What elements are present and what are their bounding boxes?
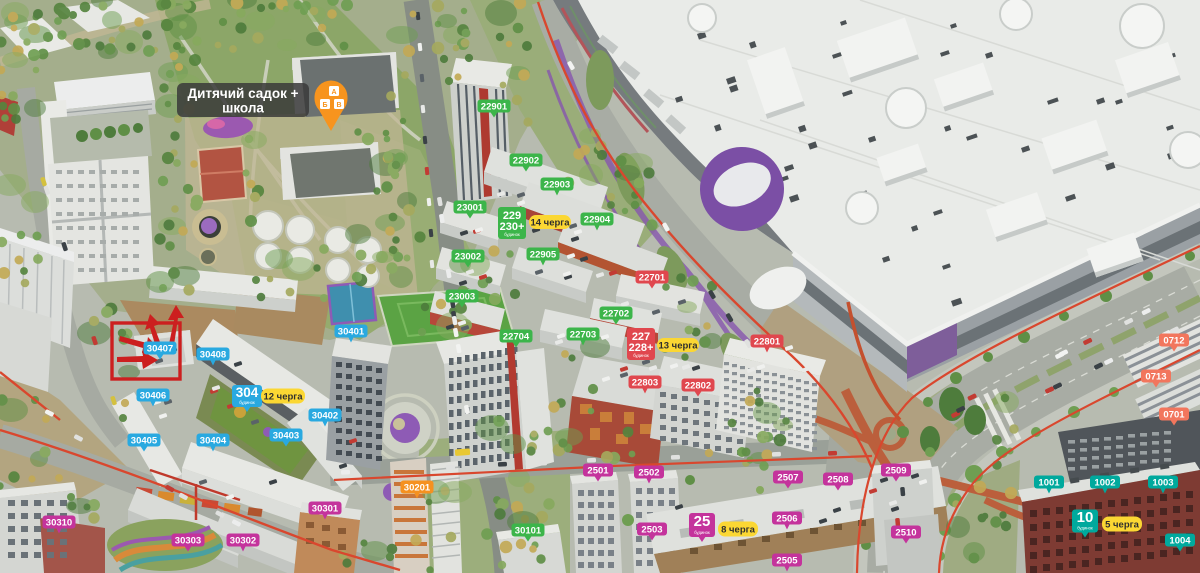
- svg-text:В: В: [336, 102, 341, 109]
- svg-text:будинок: будинок: [694, 530, 710, 535]
- svg-text:1004: 1004: [1169, 535, 1191, 546]
- svg-text:14 черга: 14 черга: [530, 217, 570, 228]
- svg-text:2501: 2501: [587, 465, 609, 476]
- svg-text:304: 304: [236, 385, 259, 400]
- svg-text:школа: школа: [222, 101, 264, 116]
- svg-text:23001: 23001: [457, 202, 484, 213]
- svg-text:30408: 30408: [200, 349, 226, 360]
- svg-text:10: 10: [1077, 509, 1094, 526]
- svg-text:12 черга: 12 черга: [263, 391, 303, 402]
- svg-text:2509: 2509: [885, 465, 906, 476]
- svg-text:22901: 22901: [481, 101, 508, 112]
- svg-text:2507: 2507: [777, 472, 798, 483]
- svg-text:2503: 2503: [641, 524, 662, 535]
- svg-text:30101: 30101: [515, 525, 542, 536]
- svg-text:будинок: будинок: [504, 232, 520, 237]
- svg-text:1003: 1003: [1152, 477, 1173, 488]
- svg-text:22801: 22801: [754, 336, 781, 347]
- svg-text:30406: 30406: [140, 390, 166, 401]
- svg-text:22704: 22704: [503, 331, 530, 342]
- svg-text:22904: 22904: [584, 214, 611, 225]
- svg-text:А: А: [331, 89, 336, 96]
- svg-text:30403: 30403: [273, 430, 299, 441]
- svg-text:0713: 0713: [1145, 371, 1166, 382]
- svg-text:22905: 22905: [530, 249, 557, 260]
- svg-text:2508: 2508: [827, 474, 848, 485]
- svg-text:30303: 30303: [175, 535, 201, 546]
- svg-text:13 черга: 13 черга: [658, 340, 698, 351]
- svg-text:22701: 22701: [639, 272, 666, 283]
- svg-text:будинок: будинок: [239, 400, 255, 405]
- svg-text:23002: 23002: [455, 251, 481, 262]
- svg-text:2502: 2502: [638, 467, 659, 478]
- svg-text:22803: 22803: [632, 377, 658, 388]
- svg-text:2506: 2506: [776, 513, 797, 524]
- svg-text:30404: 30404: [200, 435, 227, 446]
- svg-text:22903: 22903: [544, 179, 570, 190]
- svg-text:22702: 22702: [603, 308, 629, 319]
- svg-text:5 черга: 5 черга: [1105, 519, 1139, 530]
- svg-text:22902: 22902: [513, 155, 539, 166]
- svg-text:30405: 30405: [131, 435, 158, 446]
- svg-text:1001: 1001: [1038, 477, 1060, 488]
- svg-text:30407: 30407: [147, 343, 173, 354]
- svg-text:0712: 0712: [1163, 335, 1184, 346]
- svg-text:30201: 30201: [404, 482, 431, 493]
- svg-text:30402: 30402: [312, 410, 338, 421]
- svg-text:будинок: будинок: [1077, 526, 1093, 531]
- svg-text:30401: 30401: [338, 326, 365, 337]
- svg-text:Б: Б: [322, 102, 327, 109]
- svg-text:30301: 30301: [312, 503, 339, 514]
- svg-text:будинок: будинок: [633, 353, 649, 358]
- svg-text:22802: 22802: [685, 380, 711, 391]
- svg-text:2510: 2510: [895, 527, 916, 538]
- svg-text:25: 25: [694, 513, 711, 530]
- svg-text:Дитячий садок +: Дитячий садок +: [188, 86, 299, 101]
- svg-text:30302: 30302: [230, 535, 256, 546]
- svg-text:0701: 0701: [1163, 409, 1185, 420]
- svg-text:8 черга: 8 черга: [721, 524, 755, 535]
- svg-text:1002: 1002: [1094, 477, 1115, 488]
- svg-text:2505: 2505: [776, 555, 798, 566]
- svg-text:22703: 22703: [570, 329, 596, 340]
- svg-text:23003: 23003: [449, 291, 475, 302]
- svg-text:30310: 30310: [46, 517, 72, 528]
